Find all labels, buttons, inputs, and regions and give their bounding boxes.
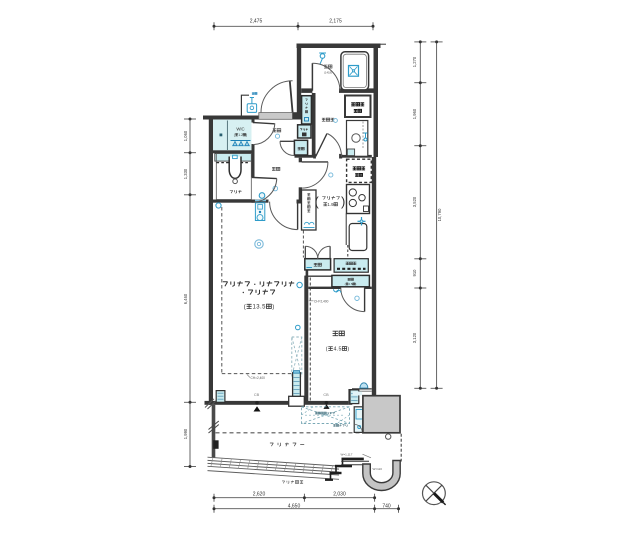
svg-text:2,620: 2,620 xyxy=(253,491,266,497)
svg-text:10,790: 10,790 xyxy=(437,208,442,221)
svg-text:740: 740 xyxy=(382,503,391,509)
svg-text:3,120: 3,120 xyxy=(412,332,417,343)
svg-text:1,330: 1,330 xyxy=(183,168,188,179)
svg-text:2: 2 xyxy=(241,133,243,137)
svg-text:2,175: 2,175 xyxy=(329,19,342,25)
svg-text:(1418): (1418) xyxy=(324,71,332,75)
svg-text:(: ( xyxy=(244,305,246,311)
svg-text:W=1,117: W=1,117 xyxy=(341,452,353,456)
svg-text:(: ( xyxy=(326,347,328,353)
svg-text:4,650: 4,650 xyxy=(288,503,301,509)
svg-text:): ) xyxy=(246,133,247,137)
svg-text:1,270: 1,270 xyxy=(412,56,417,67)
svg-text:3,520: 3,520 xyxy=(412,196,417,207)
svg-text:): ) xyxy=(355,282,356,286)
svg-text:CH=2,400: CH=2,400 xyxy=(251,376,266,380)
svg-text:CB: CB xyxy=(254,393,260,397)
svg-text:1,060: 1,060 xyxy=(183,130,188,141)
svg-text:WIC: WIC xyxy=(236,127,244,132)
svg-text:): ) xyxy=(272,305,274,311)
svg-text:2,030: 2,030 xyxy=(333,491,346,497)
svg-text:9: 9 xyxy=(331,202,334,207)
svg-text:1,990: 1,990 xyxy=(183,428,188,439)
svg-text:CH=2,400: CH=2,400 xyxy=(314,299,329,303)
svg-text:): ) xyxy=(347,347,349,353)
svg-text:5: 5 xyxy=(262,305,266,311)
svg-text:1,960: 1,960 xyxy=(412,108,417,119)
svg-text:(: ( xyxy=(345,282,346,286)
svg-text:): ) xyxy=(341,194,345,209)
svg-text:6,460: 6,460 xyxy=(183,293,188,304)
svg-text:2,475: 2,475 xyxy=(250,19,263,25)
svg-text:CB: CB xyxy=(323,393,329,397)
svg-text:W=110: W=110 xyxy=(373,467,383,471)
svg-text:5: 5 xyxy=(339,347,342,353)
svg-text:910: 910 xyxy=(412,269,417,277)
